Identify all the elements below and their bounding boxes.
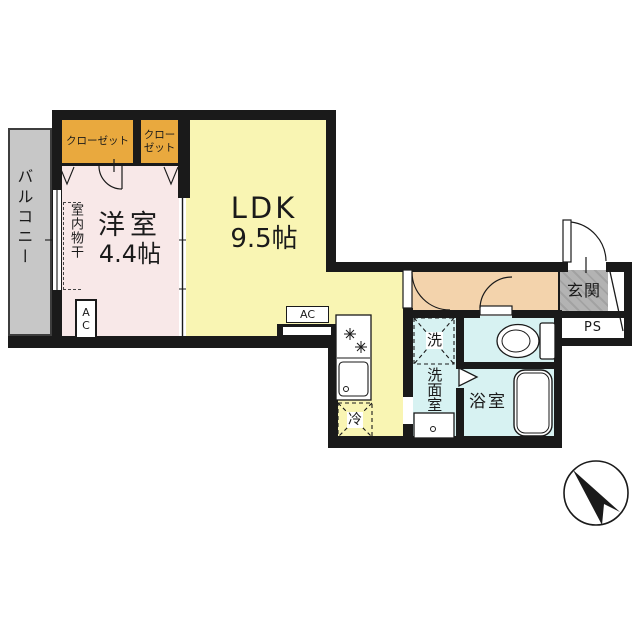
pipe-space-label: PS bbox=[562, 318, 624, 338]
entrance-label: 玄関 bbox=[560, 270, 608, 313]
western-room-name: 洋室 bbox=[88, 210, 172, 241]
closet-right-line2: ゼット bbox=[144, 142, 176, 154]
wc-door-arc bbox=[480, 277, 512, 308]
indoor-drying-bracket: 室内物干 bbox=[63, 202, 81, 290]
fridge-label: 冷 bbox=[347, 412, 363, 428]
washroom-label: 洗面室 bbox=[425, 367, 442, 433]
kitchen-sink bbox=[339, 362, 368, 396]
western-room-size: 4.4帖 bbox=[88, 241, 172, 269]
wc-door-leaf bbox=[480, 306, 512, 315]
balcony-label: バルコニー bbox=[14, 168, 32, 328]
front-door-leaf bbox=[563, 220, 571, 262]
bath-door-marker bbox=[459, 368, 477, 386]
washroom-door-gap bbox=[403, 397, 413, 424]
bathtub bbox=[514, 370, 552, 436]
ldk-name: LDK bbox=[208, 192, 320, 225]
front-door-arc bbox=[571, 222, 606, 273]
floor-plan: バルコニー クローゼット クロー ゼット 洋室 4.4帖 室内物干 AC LDK… bbox=[0, 0, 640, 640]
toilet-bowl bbox=[497, 325, 539, 358]
closet-door-mark bbox=[164, 167, 178, 184]
ldk-ac-label: AC bbox=[286, 306, 329, 323]
closet-right-line1: クロー bbox=[144, 129, 176, 141]
washer-label: 洗 bbox=[426, 332, 443, 349]
ldk-label: LDK 9.5帖 bbox=[208, 192, 320, 255]
closet-door-mark bbox=[60, 167, 74, 184]
closet-door-arc bbox=[99, 159, 122, 189]
hall-door-leaf bbox=[403, 270, 412, 308]
indoor-drying-label: 室内物干 bbox=[67, 203, 82, 287]
western-room-ac-label: AC bbox=[75, 299, 97, 339]
bathroom-label: 浴室 bbox=[469, 393, 507, 413]
closet-right-label: クロー ゼット bbox=[141, 120, 178, 163]
ldk-size: 9.5帖 bbox=[208, 225, 320, 255]
closet-left-label: クローゼット bbox=[62, 120, 133, 163]
western-room-label: 洋室 4.4帖 bbox=[88, 210, 172, 269]
toilet-tank bbox=[540, 323, 555, 359]
hall-door-arc bbox=[412, 272, 450, 310]
